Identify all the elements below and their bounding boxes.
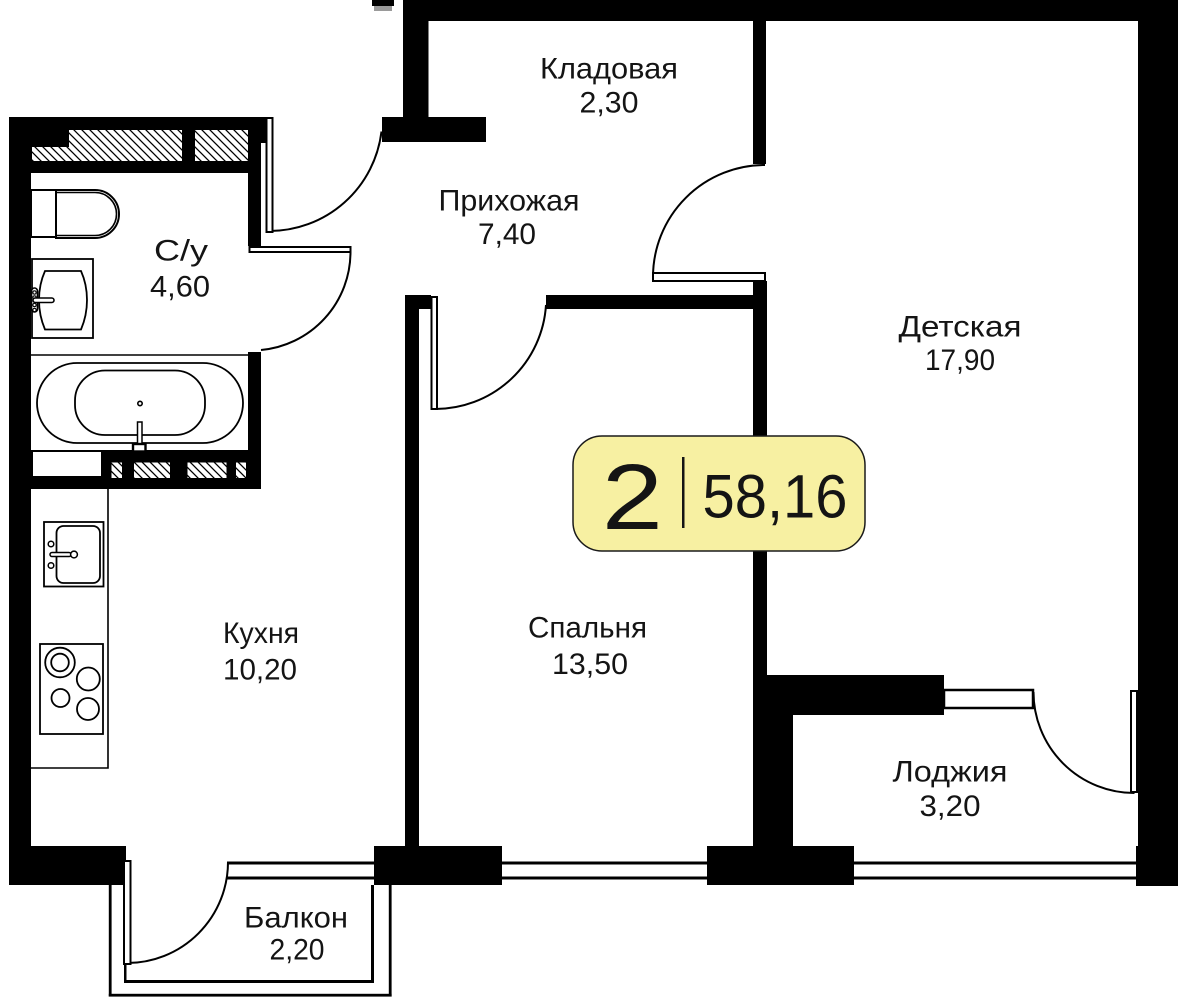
svg-text:Кладовая: Кладовая bbox=[540, 53, 678, 86]
svg-text:Прихожая: Прихожая bbox=[439, 185, 580, 218]
svg-text:13,50: 13,50 bbox=[552, 648, 628, 681]
svg-text:Детская: Детская bbox=[899, 311, 1022, 344]
svg-text:7,40: 7,40 bbox=[478, 218, 536, 251]
svg-text:С/у: С/у bbox=[154, 234, 208, 267]
svg-text:17,90: 17,90 bbox=[925, 344, 995, 377]
svg-text:2: 2 bbox=[602, 445, 663, 549]
svg-text:Спальня: Спальня bbox=[528, 612, 647, 645]
svg-text:Лоджия: Лоджия bbox=[893, 756, 1008, 789]
svg-text:2,20: 2,20 bbox=[270, 934, 325, 967]
svg-text:58,16: 58,16 bbox=[703, 463, 848, 531]
svg-text:Кухня: Кухня bbox=[223, 617, 299, 650]
svg-text:3,20: 3,20 bbox=[920, 790, 981, 823]
svg-text:4,60: 4,60 bbox=[150, 271, 210, 304]
svg-text:10,20: 10,20 bbox=[223, 654, 297, 687]
svg-text:2,30: 2,30 bbox=[580, 87, 639, 120]
svg-text:Балкон: Балкон bbox=[244, 902, 348, 935]
